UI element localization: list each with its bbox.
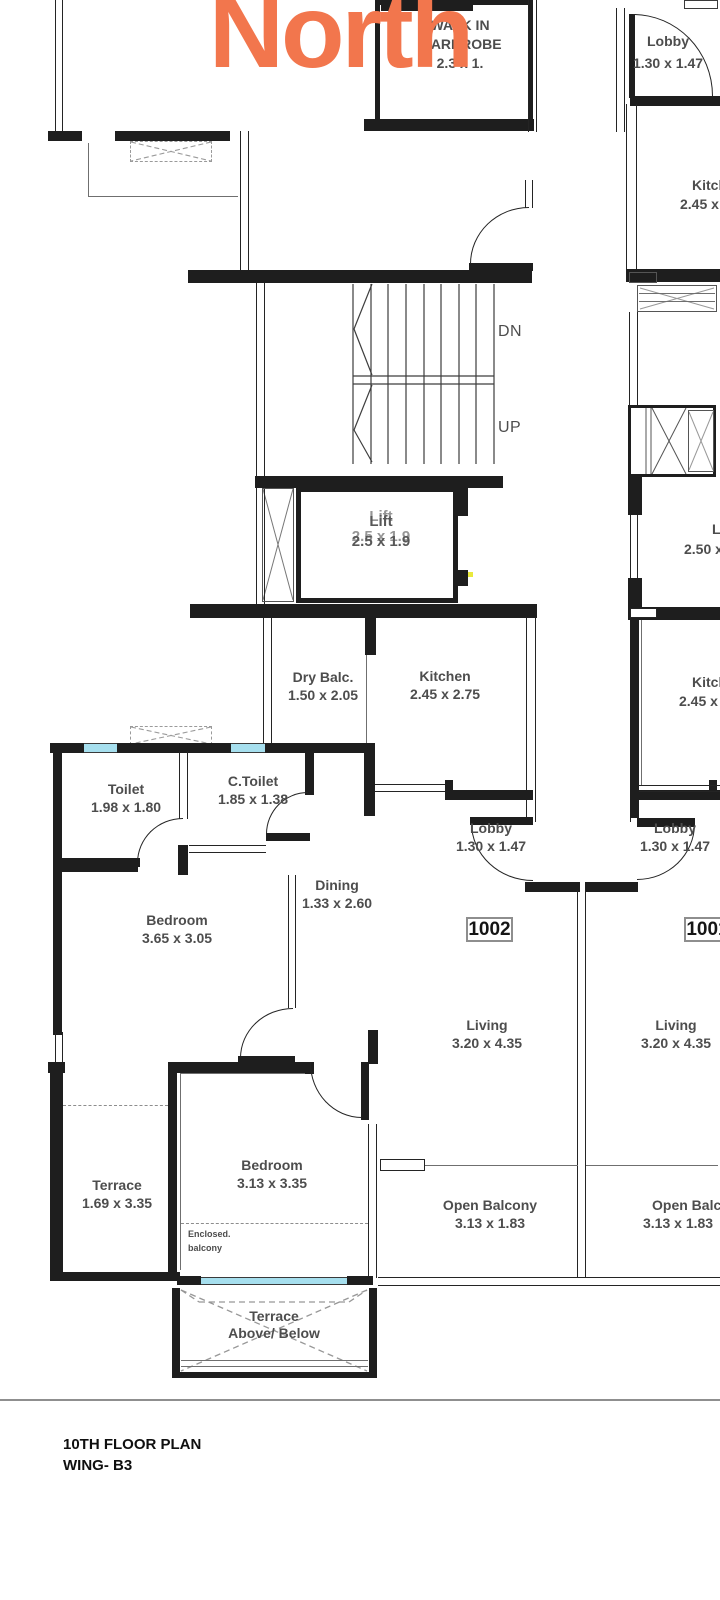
room-name: Dry Balc. [288, 668, 358, 686]
room-label-terrace-bottom: Terrace Above/ Below [228, 1308, 320, 1342]
wall [266, 833, 310, 841]
room-label-kitchen-1001-name: Kitchen [692, 673, 720, 691]
room-name: Above/ Below [228, 1325, 320, 1342]
wall [50, 1073, 63, 1274]
double-wall [616, 8, 625, 132]
double-wall [240, 131, 249, 283]
double-wall [630, 515, 638, 578]
wall [361, 1062, 369, 1120]
wall [365, 617, 376, 655]
door-arc [310, 1063, 362, 1118]
stairs-down-label: DN [498, 322, 522, 343]
room-name: Kitchen [410, 667, 480, 685]
room-name: C.Toilet [218, 772, 288, 790]
double-wall [263, 618, 272, 745]
window-strip [84, 743, 117, 753]
door-arc [240, 1008, 293, 1058]
wall [177, 1276, 201, 1285]
wall [369, 1288, 377, 1376]
thin-box [629, 272, 657, 283]
room-label-open-balcony-1002: Open Balcony 3.13 x 1.83 [443, 1196, 537, 1232]
thin-line [181, 1360, 368, 1361]
window-strip [201, 1277, 347, 1285]
room-dims: 3.65 x 3.05 [142, 929, 212, 947]
wall [172, 1372, 377, 1378]
thin-line [639, 301, 715, 302]
stairs-up-label: UP [498, 418, 521, 439]
door-arc [137, 818, 183, 863]
double-wall [626, 104, 637, 270]
wall [585, 882, 638, 892]
planter-box [130, 141, 212, 162]
thin-box [262, 488, 294, 602]
room-dims: 1.50 x 2.05 [288, 686, 358, 704]
thin-box [637, 285, 717, 312]
room-name: Living [641, 1016, 711, 1034]
room-label-living-1002: Living 3.20 x 4.35 [452, 1016, 522, 1052]
room-label-kitchen-1001-dims: 2.45 x 2.75 [679, 692, 720, 710]
wall [347, 1276, 373, 1285]
thin-line [641, 620, 642, 785]
plan-title: 10TH FLOOR PLAN WING- B3 [63, 1434, 201, 1476]
wall [305, 745, 314, 795]
thin-box [688, 410, 714, 472]
room-label-kitchen-1002: Kitchen 2.45 x 2.75 [410, 667, 480, 703]
wall [172, 1288, 180, 1376]
wall [630, 96, 720, 106]
wall [630, 620, 639, 818]
room-name: Toilet [91, 780, 161, 798]
room-label-lobby-mid-right-dims: 2.50 x [684, 540, 720, 558]
room-label-kitchen-top-right-name: Kitchen [692, 176, 720, 194]
room-label-bedroom-second: Bedroom 3.13 x 3.35 [237, 1156, 307, 1192]
room-dims: 2.45 x 2.75 [410, 685, 480, 703]
thin-line [639, 293, 715, 294]
room-label-toilet: Toilet 1.98 x 1.80 [91, 780, 161, 816]
wall [48, 1062, 65, 1073]
wall [48, 131, 82, 141]
room-dims: 3.13 x 1.83 [443, 1214, 537, 1232]
plan-title-line1: 10TH FLOOR PLAN [63, 1434, 201, 1455]
room-label-lobby-1002: Lobby 1.30 x 1.47 [456, 819, 526, 855]
room-label-lobby-mid-right-name: Lobby [712, 520, 720, 538]
room-name: Lobby [633, 30, 703, 52]
thin-line [88, 143, 89, 197]
wall [364, 119, 534, 131]
thin-line [181, 1366, 368, 1367]
room-name: Open Balcony [443, 1196, 537, 1214]
room-label-lobby-top: Lobby 1.30 x 1.47 [633, 30, 703, 75]
wall [188, 270, 532, 283]
room-label-terrace-side: Terrace 1.69 x 3.35 [82, 1176, 152, 1212]
wall [168, 1062, 177, 1274]
floor-plan: WALK IN WARDROBE 2.3 x 1. Lobby 1.30 x 1… [0, 0, 720, 1600]
room-label-dry-balcony: Dry Balc. 1.50 x 2.05 [288, 668, 358, 704]
double-wall [288, 875, 296, 1008]
room-dims: 3.13 x 3.35 [237, 1174, 307, 1192]
double-wall [179, 751, 188, 819]
dashed-line [181, 1223, 368, 1225]
room-name: Living [452, 1016, 522, 1034]
double-wall [525, 180, 533, 208]
wall [53, 860, 138, 872]
double-wall [639, 785, 720, 792]
room-name: Terrace [82, 1176, 152, 1194]
wall [445, 790, 533, 800]
room-name: Bedroom [142, 911, 212, 929]
window-strip [231, 743, 265, 753]
unit-number-1002: 1002 [466, 917, 513, 942]
north-label: North [209, 0, 471, 84]
separator-line [0, 1399, 720, 1401]
wall [168, 1062, 313, 1073]
wall [457, 570, 468, 586]
unit-number-1001: 1001 [684, 917, 720, 942]
double-wall [577, 890, 586, 1278]
room-label-bedroom-main: Bedroom 3.65 x 3.05 [142, 911, 212, 947]
wall [368, 1030, 378, 1064]
wall [628, 477, 642, 515]
room-name: balcony [188, 1242, 231, 1256]
room-dims: 3.20 x 4.35 [641, 1034, 711, 1052]
double-wall [189, 845, 266, 853]
thin-line [181, 1073, 309, 1074]
wall [457, 488, 468, 516]
room-dims: 1.30 x 1.47 [456, 837, 526, 855]
room-dims: 3.20 x 4.35 [452, 1034, 522, 1052]
room-label-lobby-1001: Lobby 1.30 x 1.47 [640, 819, 710, 855]
wall [364, 743, 375, 816]
room-dims: 1.69 x 3.35 [82, 1194, 152, 1212]
room-name: Bedroom [237, 1156, 307, 1174]
room-label-kitchen-top-right-dims: 2.45 x 2.75 [680, 195, 720, 213]
double-wall [368, 1124, 377, 1278]
room-dims: 1.33 x 2.60 [302, 894, 372, 912]
double-wall [55, 0, 63, 138]
thin-line [586, 1165, 718, 1166]
white-box [630, 608, 657, 618]
door-arc [470, 207, 529, 264]
label-box-partial [684, 0, 718, 9]
room-dims: 1.85 x 1.38 [218, 790, 288, 808]
thin-line [425, 1165, 578, 1166]
double-wall [528, 0, 537, 132]
room-dims: 1.30 x 1.47 [640, 837, 710, 855]
room-label-enclosed-balcony: Enclosed. balcony [188, 1228, 231, 1255]
room-label-open-balcony-1001-name: Open Balcony [652, 1196, 720, 1214]
plan-title-line2: WING- B3 [63, 1455, 201, 1476]
white-box [380, 1159, 425, 1171]
room-name: Dining [302, 876, 372, 894]
thin-line [366, 655, 367, 745]
room-name: Lobby [456, 819, 526, 837]
wall [115, 131, 230, 141]
dashed-line [63, 1105, 168, 1107]
room-dims: 1.30 x 1.47 [633, 52, 703, 74]
room-label-living-1001: Living 3.20 x 4.35 [641, 1016, 711, 1052]
wall [53, 745, 62, 1035]
thin-line [180, 1073, 181, 1270]
thin-line [88, 196, 238, 197]
double-wall [378, 1277, 720, 1286]
room-label-lift: Lift 2.5 x 1.9 [352, 512, 410, 551]
wall [525, 882, 580, 892]
wall [50, 1272, 180, 1281]
marker [468, 572, 473, 577]
double-wall [55, 1032, 63, 1062]
wall [628, 578, 642, 608]
room-name: Lobby [640, 819, 710, 837]
room-dims: 2.5 x 1.9 [352, 532, 410, 552]
wall [178, 845, 188, 875]
wall [190, 604, 537, 618]
room-label-c-toilet: C.Toilet 1.85 x 1.38 [218, 772, 288, 808]
double-wall [370, 784, 446, 792]
room-label-dining: Dining 1.33 x 2.60 [302, 876, 372, 912]
double-wall [629, 312, 638, 405]
room-name: Lift [352, 512, 410, 532]
room-name: Terrace [228, 1308, 320, 1325]
room-label-open-balcony-1001-dims: 3.13 x 1.83 [643, 1214, 713, 1232]
room-name: Enclosed. [188, 1228, 231, 1242]
room-dims: 1.98 x 1.80 [91, 798, 161, 816]
wall [117, 743, 231, 753]
wall [265, 743, 375, 753]
